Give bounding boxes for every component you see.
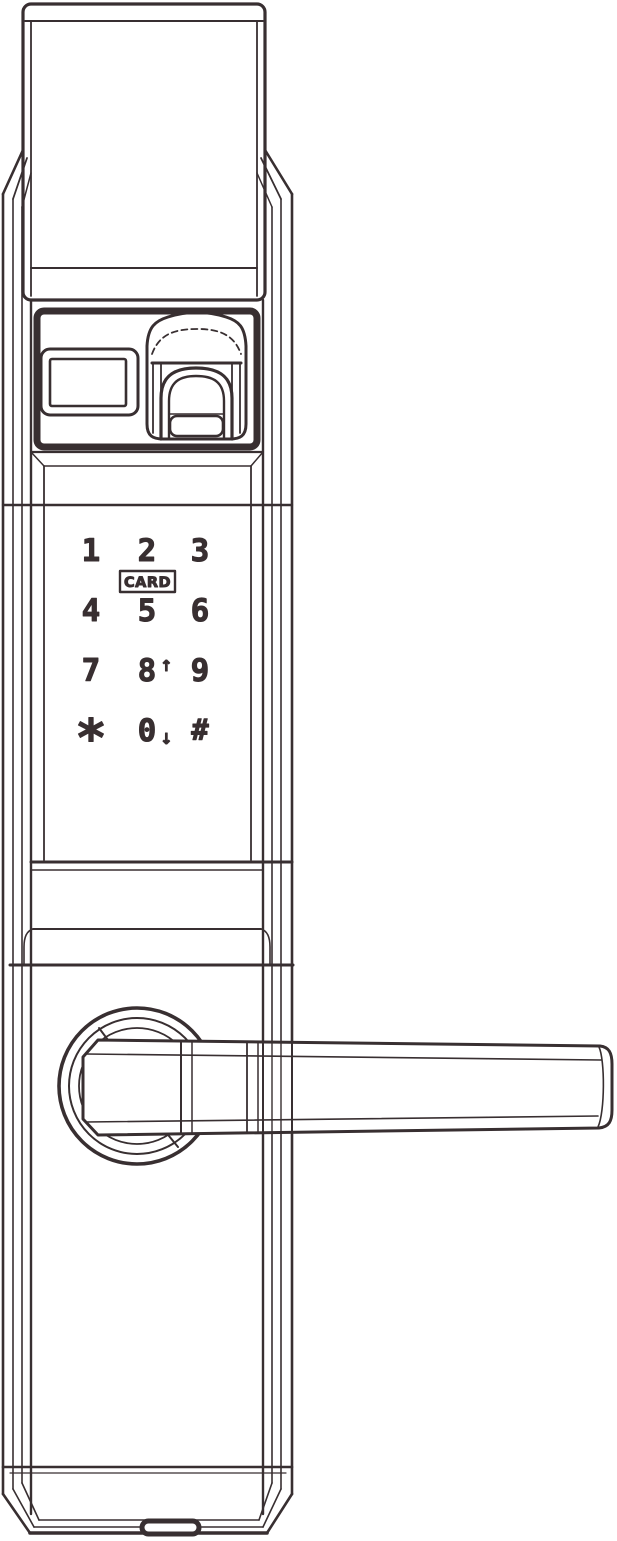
key-0[interactable]: 0: [138, 713, 157, 749]
key-8[interactable]: 8: [138, 653, 157, 689]
key-hash[interactable]: #: [191, 713, 209, 747]
key-0-down-arrow-icon: ↓: [160, 730, 173, 748]
key-4[interactable]: 4: [82, 593, 101, 629]
key-6[interactable]: 6: [191, 593, 210, 629]
key-7[interactable]: 7: [82, 653, 101, 689]
fingerprint-arch-outer: [161, 368, 232, 439]
fingerprint-sensor[interactable]: [147, 313, 246, 440]
body-chamfer-line: [13, 158, 27, 199]
key-3[interactable]: 3: [191, 533, 210, 569]
door-lock-technical-drawing: 1 2 3 CARD 4 5 6 7 8 ↑ 9 * 0 ↓ #: [0, 0, 617, 1541]
door-handle[interactable]: [59, 1008, 612, 1164]
key-star[interactable]: *: [77, 709, 104, 769]
top-cover: [23, 4, 265, 300]
bevel-line: [31, 452, 44, 466]
bevel-line: [251, 452, 263, 466]
mid-seams: [10, 862, 293, 965]
drawing-lines: 1 2 3 CARD 4 5 6 7 8 ↑ 9 * 0 ↓ #: [3, 4, 612, 1534]
bottom-section: [3, 1467, 292, 1534]
bottom-chamfer-line: [267, 1494, 292, 1533]
card-badge[interactable]: CARD: [120, 571, 175, 592]
fingerprint-brow-line: [152, 329, 241, 354]
bottom-chamfer-line: [263, 1489, 281, 1527]
key-2[interactable]: 2: [138, 533, 157, 569]
bottom-chamfer-line: [259, 1483, 272, 1520]
key-9[interactable]: 9: [191, 653, 210, 689]
key-8-up-arrow-icon: ↑: [160, 657, 173, 675]
fingerprint-arch-inner: [169, 376, 224, 439]
top-cover-outline: [23, 4, 265, 300]
body-chamfer-line: [265, 150, 292, 194]
bottom-port: [142, 1521, 199, 1534]
key-5[interactable]: 5: [138, 593, 157, 629]
body-chamfer-line: [3, 150, 23, 194]
key-1[interactable]: 1: [82, 533, 101, 569]
keypad: 1 2 3 CARD 4 5 6 7 8 ↑ 9 * 0 ↓ #: [77, 533, 209, 769]
card-badge-label: CARD: [124, 575, 171, 591]
fingerprint-pad: [170, 416, 223, 436]
sensor-panel: [37, 311, 257, 447]
display-screen: [50, 359, 126, 406]
